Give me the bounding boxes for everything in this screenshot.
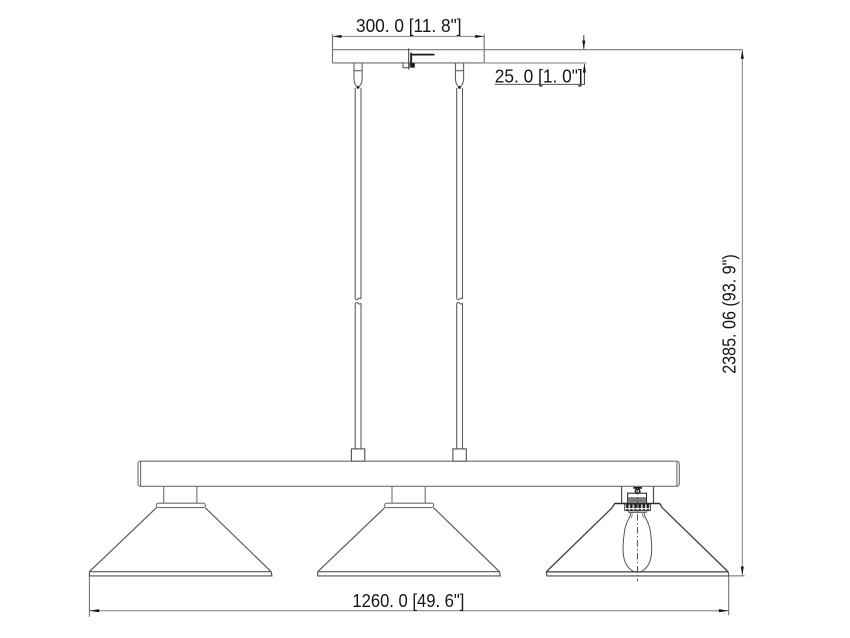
svg-text:300. 0 [11. 8"]: 300. 0 [11. 8"] (356, 16, 462, 36)
svg-text:2385. 06 (93. 9"): 2385. 06 (93. 9") (719, 254, 739, 374)
svg-text:1260. 0 [49. 6"]: 1260. 0 [49. 6"] (352, 591, 464, 611)
svg-text:25. 0 [1. 0"]: 25. 0 [1. 0"] (495, 66, 583, 86)
